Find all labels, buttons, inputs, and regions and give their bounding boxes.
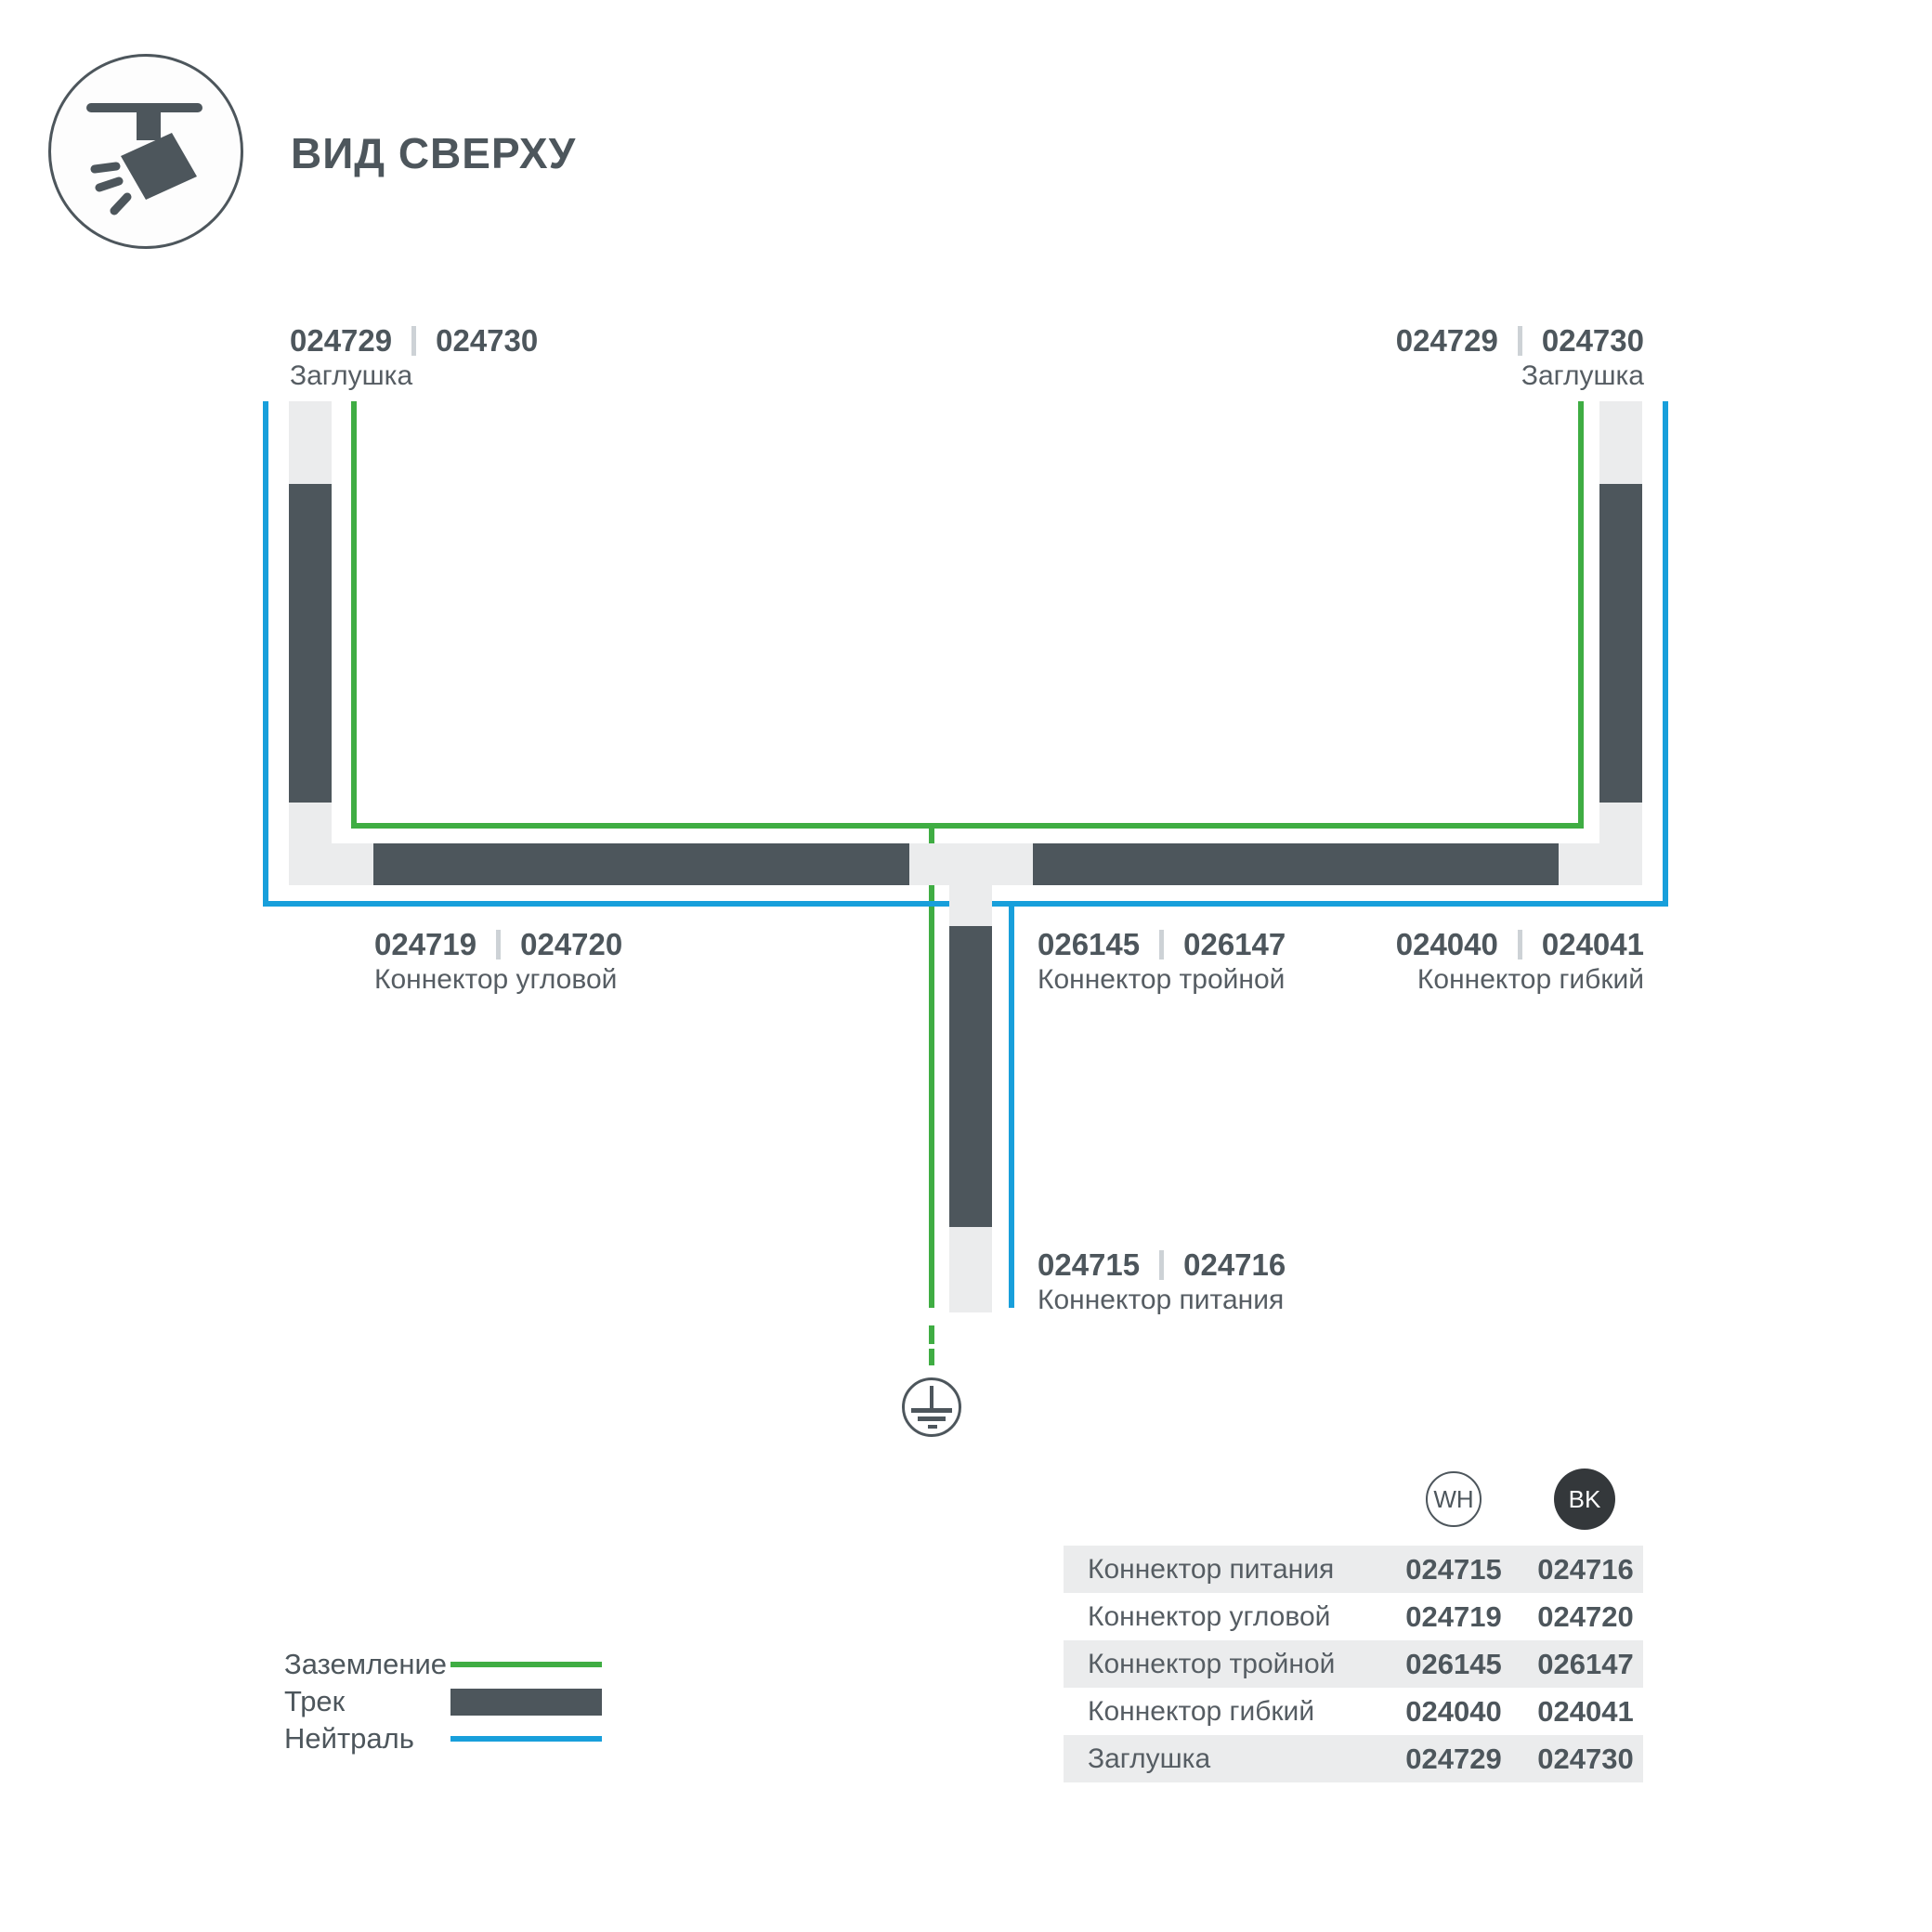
earth-bar-short (928, 1425, 937, 1429)
ground-line-horizontal (351, 823, 1584, 829)
row-bk-number: 024730 (1528, 1743, 1643, 1776)
legend-label: Нейтраль (284, 1722, 414, 1756)
neutral-line-right-vertical (1663, 401, 1668, 907)
triple-connector-horizontal (909, 843, 1033, 885)
track-swatch (450, 1689, 602, 1716)
table-row: Заглушка 024729 024730 (1064, 1735, 1643, 1782)
part-number-wh: 024729 (1396, 325, 1498, 356)
track-spotlight-icon (51, 57, 241, 246)
black-color-badge: BK (1554, 1469, 1615, 1530)
earth-bar-medium (918, 1416, 946, 1421)
end-cap-connector-right (1599, 401, 1642, 484)
row-wh-number: 024729 (1379, 1743, 1528, 1776)
row-bk-number: 024720 (1528, 1600, 1643, 1634)
earth-stem (930, 1386, 933, 1410)
row-wh-number: 024040 (1379, 1695, 1528, 1729)
part-number-bk: 024041 (1542, 929, 1644, 959)
label-end-cap-right: 024729 024730 Заглушка (1396, 325, 1644, 390)
part-numbers: 024729 024730 (1396, 325, 1644, 356)
part-number-wh: 024715 (1038, 1249, 1140, 1280)
ground-line-left-vertical (351, 401, 357, 829)
table-row: Коннектор гибкий 024040 024041 (1064, 1688, 1643, 1735)
part-numbers: 026145 026147 (1038, 929, 1286, 959)
row-wh-number: 024719 (1379, 1600, 1528, 1634)
parts-table: WH BK Коннектор питания 024715 024716 Ко… (1064, 1467, 1643, 1782)
part-number-bk: 024716 (1183, 1249, 1286, 1280)
page: ВИД СВЕРХУ 024729 024730 Заглушка 0 (0, 0, 1932, 1932)
label-power-connector: 024715 024716 Коннектор питания (1038, 1249, 1286, 1314)
label-end-cap-left: 024729 024730 Заглушка (290, 325, 538, 390)
earth-bar-long (911, 1408, 952, 1413)
row-label: Коннектор питания (1064, 1554, 1379, 1586)
power-connector (949, 1227, 992, 1312)
page-title: ВИД СВЕРХУ (291, 128, 576, 178)
track-horizontal-left (373, 843, 909, 885)
part-number-bk: 024730 (436, 325, 538, 356)
part-number-bk: 026147 (1183, 929, 1286, 959)
white-color-badge: WH (1426, 1471, 1482, 1527)
corner-connector-left-horizontal-leg (289, 843, 373, 885)
legend-item-track: Трек (284, 1683, 604, 1720)
part-numbers: 024715 024716 (1038, 1249, 1286, 1280)
row-label: Коннектор угловой (1064, 1601, 1379, 1633)
track-center-vertical (949, 926, 992, 1227)
track-horizontal-right (1033, 843, 1559, 885)
row-bk-number: 024041 (1528, 1695, 1643, 1729)
ground-line-dash-1 (929, 1325, 934, 1344)
table-row: Коннектор угловой 024719 024720 (1064, 1593, 1643, 1640)
label-triple-connector: 026145 026147 Коннектор тройной (1038, 929, 1286, 994)
row-bk-number: 024716 (1528, 1553, 1643, 1586)
part-number-bk: 024720 (520, 929, 622, 959)
ground-line-center-vertical (929, 823, 934, 1308)
part-number-wh: 024719 (374, 929, 476, 959)
part-number-bk: 024730 (1542, 325, 1644, 356)
row-label: Коннектор гибкий (1064, 1696, 1379, 1728)
legend-item-ground: Заземление (284, 1646, 604, 1683)
part-name: Коннектор питания (1038, 1286, 1286, 1314)
row-label: Коннектор тройной (1064, 1649, 1379, 1680)
ground-line-right-vertical (1578, 401, 1584, 829)
row-bk-number: 026147 (1528, 1648, 1643, 1681)
legend-label: Заземление (284, 1648, 447, 1681)
legend: Заземление Трек Нейтраль (284, 1646, 604, 1757)
neutral-line-left-vertical (263, 401, 268, 907)
separator (496, 930, 501, 959)
part-numbers: 024719 024720 (374, 929, 622, 959)
separator (1159, 930, 1164, 959)
neutral-line-center-branch (1009, 901, 1014, 1308)
top-view-icon (48, 54, 243, 249)
corner-connector-right-horizontal-leg (1558, 843, 1642, 885)
legend-item-neutral: Нейтраль (284, 1720, 604, 1757)
table-header: WH BK (1064, 1467, 1643, 1546)
part-name: Коннектор тройной (1038, 966, 1286, 994)
table-row: Коннектор питания 024715 024716 (1064, 1546, 1643, 1593)
end-cap-connector-left (289, 401, 332, 484)
part-number-wh: 024729 (290, 325, 392, 356)
separator (1518, 326, 1522, 356)
label-corner-connector: 024719 024720 Коннектор угловой (374, 929, 622, 994)
label-flexible-connector: 024040 024041 Коннектор гибкий (1396, 929, 1644, 994)
part-name: Заглушка (1521, 362, 1644, 390)
part-number-wh: 026145 (1038, 929, 1140, 959)
ground-line-dash-2 (929, 1349, 934, 1365)
part-numbers: 024729 024730 (290, 325, 538, 356)
neutral-line-swatch (450, 1736, 602, 1742)
row-wh-number: 026145 (1379, 1648, 1528, 1681)
part-number-wh: 024040 (1396, 929, 1498, 959)
ground-line-swatch (450, 1662, 602, 1667)
part-name: Заглушка (290, 362, 538, 390)
row-label: Заглушка (1064, 1743, 1379, 1775)
part-name: Коннектор угловой (374, 966, 622, 994)
part-numbers: 024040 024041 (1396, 929, 1644, 959)
row-wh-number: 024715 (1379, 1553, 1528, 1586)
part-name: Коннектор гибкий (1417, 966, 1644, 994)
table-row: Коннектор тройной 026145 026147 (1064, 1640, 1643, 1688)
separator (1518, 930, 1522, 959)
separator (1159, 1250, 1164, 1280)
triple-connector-vertical (949, 885, 992, 927)
track-right-vertical (1599, 484, 1642, 803)
track-left-vertical (289, 484, 332, 803)
legend-label: Трек (284, 1685, 345, 1718)
separator (411, 326, 416, 356)
